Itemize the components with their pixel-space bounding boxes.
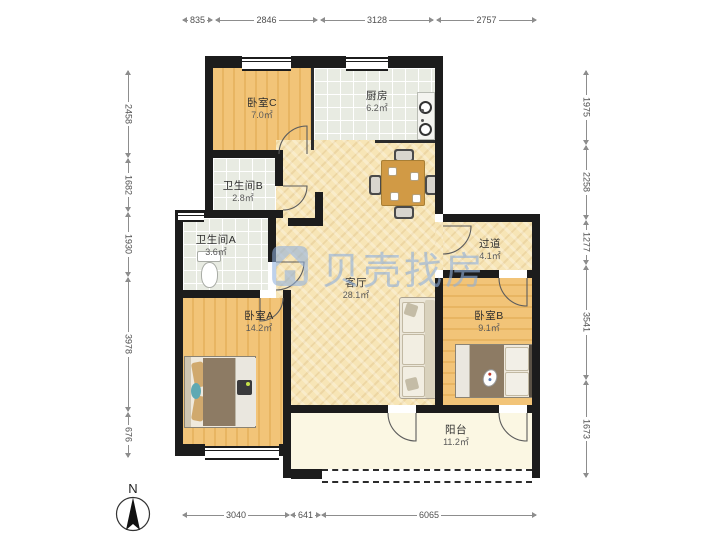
dim-left-3: 1930 [122,212,134,277]
window-bedroomC [242,57,291,71]
dining-chair-bottom [394,206,414,219]
north-label: N [120,481,146,496]
dim-left-1: 2458 [122,70,134,158]
plate [412,194,421,203]
dim-bottom-3: 6065 [321,509,537,521]
window-bathA [178,211,204,222]
dim-bottom-1: 3040 [182,509,290,521]
watermark-text: 贝壳找房 [322,240,486,295]
dim-top-3: 3128 [320,14,434,26]
bed-bedroomB [455,344,535,398]
dim-bottom-2: 641 [290,509,321,521]
balcony-railing [322,469,532,483]
dim-left-4: 3978 [122,277,134,412]
dim-right-3: 1277 [580,220,592,265]
plate [388,167,397,176]
label-bathA: 卫生间A3.6㎡ [184,234,248,258]
label-bedroomB: 卧室B9.1㎡ [457,310,521,334]
dim-right-1: 1975 [580,70,592,145]
window-bedroomA [205,446,279,460]
burner [419,101,432,114]
dim-right-5: 1673 [580,380,592,478]
stove [417,92,435,140]
bed-bedroomA [184,356,256,428]
label-balcony: 阳台11.2㎡ [424,424,488,448]
sofa [399,297,437,399]
round-cushion [191,383,201,399]
plate [410,172,419,181]
label-bedroomA: 卧室A14.2㎡ [227,310,291,334]
compass-icon [117,498,150,531]
dim-left-5: 676 [122,412,134,458]
bed-tray [237,380,252,395]
dim-left-2: 1682 [122,158,134,212]
blanket [203,358,235,426]
window-kitchen [346,57,388,71]
dim-top-4: 2757 [436,14,537,26]
pillow [505,372,529,396]
plate [390,192,399,201]
dim-top-1: 835 [182,14,213,26]
floor-plan-canvas: 卧室C7.0㎡ 厨房6.2㎡ 卫生间B2.8㎡ 卫生间A3.6㎡ 卧室A14.2… [0,0,720,540]
dim-top-2: 2846 [215,14,318,26]
label-kitchen: 厨房6.2㎡ [345,90,409,114]
dim-right-2: 2258 [580,145,592,220]
pillow [505,347,529,371]
room-floor-balcony [291,413,532,470]
folded-sheet [456,345,470,397]
toilet-bowl [201,262,218,288]
dim-right-4: 3541 [580,265,592,380]
label-bathB: 卫生间B2.8㎡ [211,180,275,204]
burner [419,123,432,136]
label-bedroomC: 卧室C7.0㎡ [230,97,294,121]
